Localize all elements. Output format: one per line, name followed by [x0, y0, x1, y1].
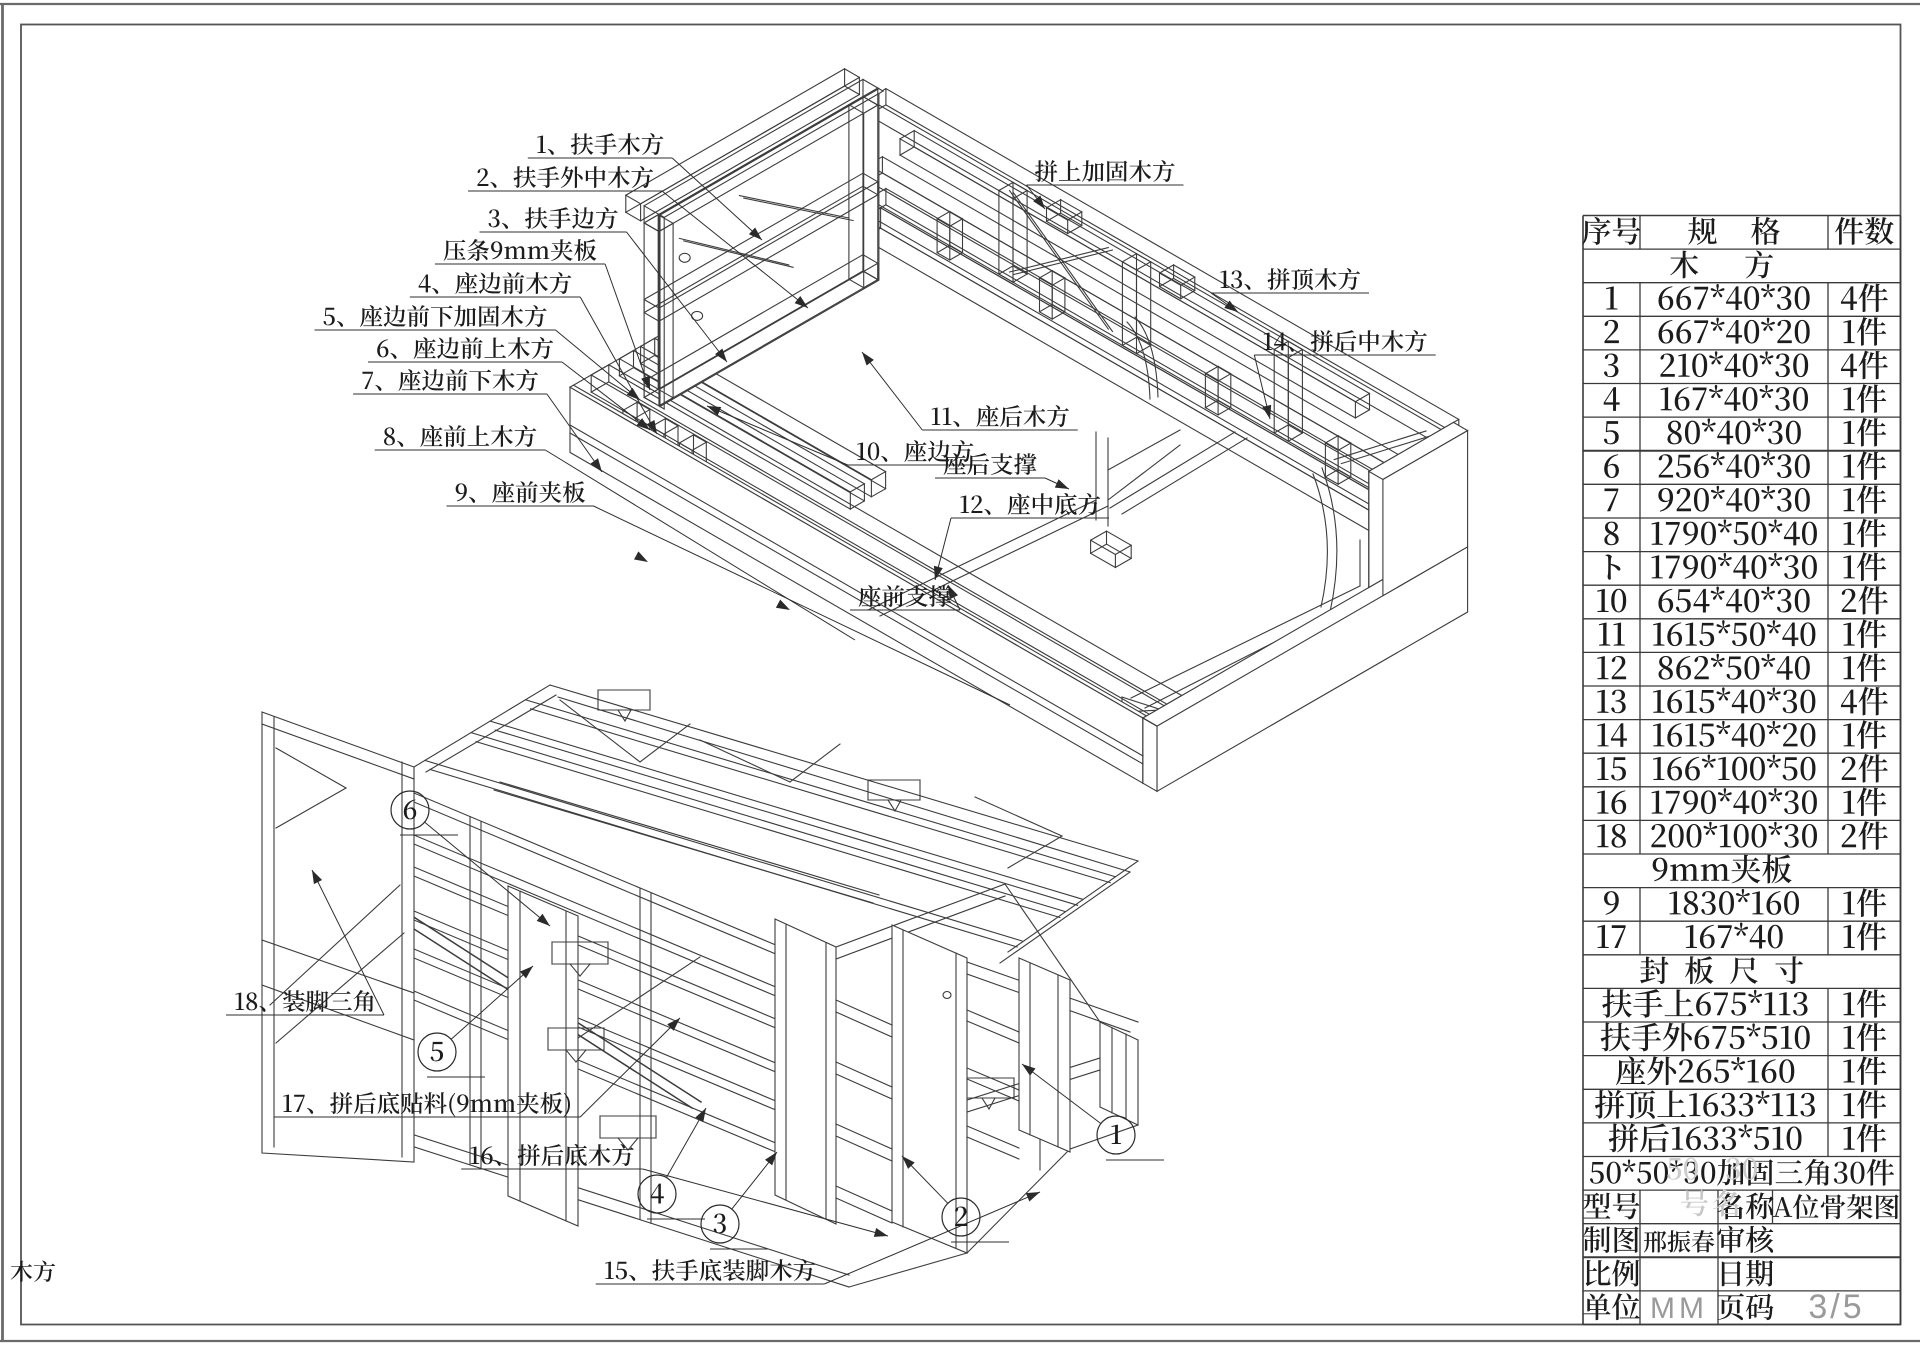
- svg-text:MM: MM: [1650, 1292, 1708, 1325]
- svg-text:3/5: 3/5: [1808, 1288, 1864, 1326]
